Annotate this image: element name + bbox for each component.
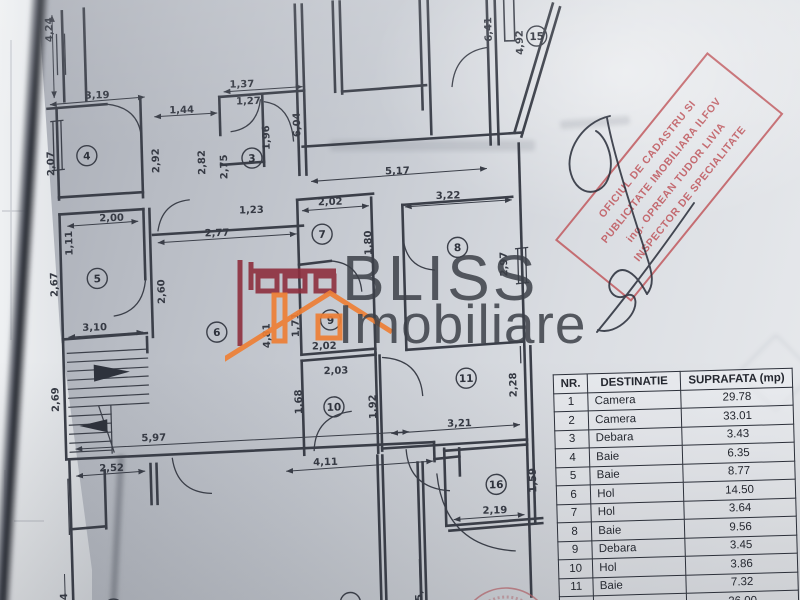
logo-house: [225, 293, 392, 360]
dimension-label: 3,10: [82, 322, 107, 334]
room-number: 7: [318, 229, 326, 241]
dimension-label: 4,24: [44, 17, 56, 42]
dimension-label: 2,92: [151, 148, 163, 173]
table-cell: 5: [556, 466, 591, 485]
dimension-label: 6,04: [292, 112, 304, 137]
floorplan-photo: { "watermark": { "line1": "BLISS", "line…: [0, 0, 800, 600]
logo-buildings: [240, 260, 336, 346]
room-number: 5: [93, 273, 101, 285]
room-number: 6: [213, 327, 221, 339]
dimension-label: 1,11: [64, 231, 76, 256]
room-number: 8: [454, 242, 462, 254]
dimension-label: 5,17: [385, 166, 410, 178]
dimension-label: 1,96: [261, 125, 273, 150]
table-cell: 10: [558, 559, 593, 578]
dimension-label: 0,24: [59, 593, 71, 600]
dimension-label: 4,92: [515, 30, 527, 55]
table-cell: 6: [556, 485, 591, 504]
table-cell: 8: [557, 522, 592, 541]
dimension-label: 2,52: [99, 463, 124, 475]
dimension-label: 1,44: [169, 105, 194, 117]
dimension-label: 1,68: [293, 389, 305, 414]
table-cell: 7: [557, 503, 592, 522]
staircase: [67, 349, 150, 454]
table-cell: 1: [554, 392, 589, 411]
dimension-label: 2,82: [197, 150, 209, 175]
table-header-cell: NR.: [553, 374, 588, 393]
room-number: 10: [327, 401, 342, 413]
dimension-label: 1,37: [229, 79, 254, 91]
dimension-label: 2,60: [156, 279, 168, 304]
room-number: 3: [248, 153, 256, 165]
dimension-label: 2,67: [49, 272, 61, 297]
dimension-label: 4,11: [313, 457, 338, 469]
table-cell: 2: [554, 411, 589, 430]
dimension-label: 2,07: [46, 151, 58, 176]
dimension-label: 2,19: [482, 505, 507, 517]
dimension-label: 1,59: [528, 468, 540, 493]
dimension-label: 1,92: [368, 394, 380, 419]
table-cell: 9: [558, 540, 593, 559]
dimension-label: 2,28: [508, 372, 520, 397]
table-cell: 11: [559, 577, 594, 596]
room-number: 11: [459, 373, 474, 385]
dimension-label: 2,69: [50, 387, 62, 412]
dimension-label: 3,22: [436, 190, 461, 202]
dimension-label: 2,02: [318, 197, 343, 209]
dimension-label: 6,41: [483, 17, 495, 42]
rooms-table: NR.DESTINATIESUPRAFATA (mp) 1Camera29.78…: [553, 368, 800, 600]
table-cell: 4: [555, 448, 590, 467]
dimension-label: 3,21: [447, 418, 472, 430]
room-number-circle-partial: [340, 592, 361, 600]
dimension-label: 2,75: [219, 154, 231, 179]
room-number: 15: [529, 31, 544, 43]
dimension-label: 3,19: [85, 90, 110, 102]
table-cell: [559, 596, 594, 600]
dimension-label: 1,23: [239, 205, 264, 217]
dimension-label: 2,03: [323, 365, 348, 377]
bliss-logo: [225, 252, 405, 362]
stairs-down-arrow: [79, 419, 107, 433]
stairs-up-arrow: [94, 364, 130, 382]
dimension-label: 2,00: [99, 213, 124, 225]
dimension-label: 2,77: [205, 228, 230, 240]
room-number: 16: [489, 479, 504, 491]
dimension-label: 5,: [414, 590, 425, 600]
room-number: 4: [83, 150, 91, 162]
dimension-label: 1,27: [236, 96, 261, 108]
dimension-label: 2,97: [499, 252, 511, 277]
table-cell: 3: [555, 429, 590, 448]
dimension-label: 5,97: [141, 433, 166, 445]
